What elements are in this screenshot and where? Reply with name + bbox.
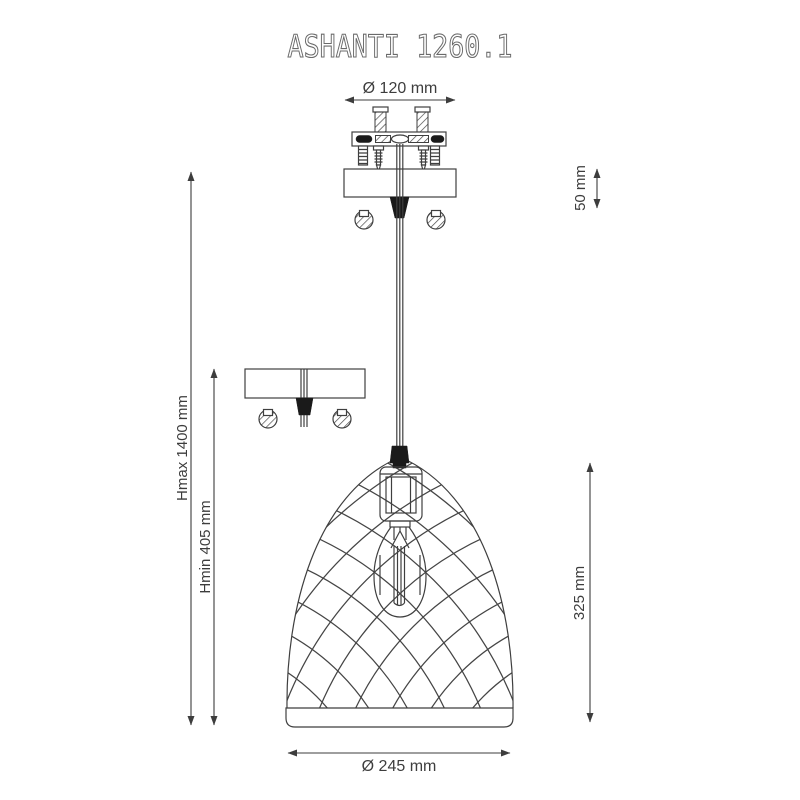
- dim-label-shade-diameter: Ø 245 mm: [362, 758, 437, 775]
- technical-drawing-page: ASHANTI 1260.1: [0, 0, 800, 800]
- screw-head-icon: [333, 410, 351, 429]
- screw-icon: [374, 146, 384, 172]
- wall-plug-icon: [415, 107, 430, 132]
- cord-grip: [296, 398, 313, 415]
- screw-head-icon: [259, 410, 277, 429]
- dim-label-canopy-height: 50 mm: [572, 165, 589, 211]
- canopy-installed-detail: [245, 369, 365, 428]
- screw-icon: [419, 146, 429, 172]
- wall-plug-icon: [373, 107, 388, 132]
- dome-outline: [287, 457, 513, 708]
- dim-label-hmax: Hmax 1400 mm: [174, 395, 191, 501]
- dim-label-shade-height: 325 mm: [571, 566, 588, 620]
- mounting-bracket-assembly: [352, 107, 446, 172]
- threaded-rod-icon: [359, 146, 368, 165]
- cord-grip: [390, 446, 409, 463]
- screw-head-icon: [427, 211, 445, 230]
- lamp-technical-drawing: ASHANTI 1260.1: [0, 0, 800, 800]
- threaded-rod-icon: [431, 146, 440, 165]
- shade-bottom-band: [286, 708, 513, 727]
- light-bulb: [374, 527, 426, 617]
- lamp-socket: [380, 446, 422, 540]
- screw-head-icon: [355, 211, 373, 230]
- mounting-bar: [352, 132, 446, 146]
- dim-label-canopy-diameter: Ø 120 mm: [363, 80, 438, 97]
- dim-label-hmin: Hmin 405 mm: [197, 500, 214, 593]
- page-title: ASHANTI 1260.1: [288, 29, 513, 65]
